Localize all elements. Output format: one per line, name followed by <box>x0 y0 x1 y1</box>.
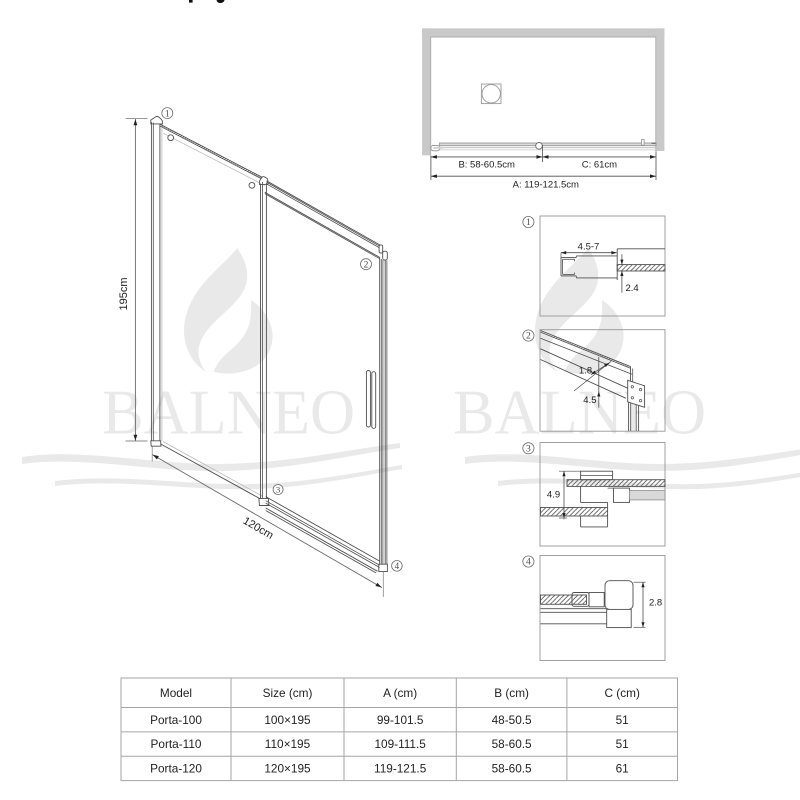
svg-text:Porta-100: Porta-100 <box>150 713 202 727</box>
svg-text:58-60.5: 58-60.5 <box>492 737 532 751</box>
svg-text:2: 2 <box>526 332 531 342</box>
svg-text:1.8: 1.8 <box>579 366 592 377</box>
svg-text:C: 61cm: C: 61cm <box>582 159 617 170</box>
svg-text:B (cm): B (cm) <box>494 686 529 700</box>
svg-text:Model: Model <box>160 686 192 700</box>
svg-text:61: 61 <box>616 762 629 776</box>
svg-text:110×195: 110×195 <box>265 737 311 751</box>
svg-text:3: 3 <box>276 484 281 494</box>
svg-text:2.8: 2.8 <box>649 598 662 609</box>
svg-text:4.5: 4.5 <box>583 395 596 406</box>
svg-text:1: 1 <box>526 218 531 228</box>
svg-text:51: 51 <box>616 713 629 727</box>
svg-text:3: 3 <box>526 445 531 455</box>
svg-text:A: 119-121.5cm: A: 119-121.5cm <box>513 179 579 190</box>
svg-text:109-111.5: 109-111.5 <box>374 737 426 751</box>
svg-text:2: 2 <box>364 260 369 270</box>
svg-text:195cm: 195cm <box>118 277 130 310</box>
svg-text:BALNEO: BALNEO <box>453 377 706 448</box>
svg-text:2.4: 2.4 <box>626 283 639 294</box>
svg-text:Size (cm): Size (cm) <box>263 686 313 700</box>
svg-text:4.5-7: 4.5-7 <box>578 241 600 252</box>
svg-text:119-121.5: 119-121.5 <box>374 762 427 776</box>
svg-text:99-101.5: 99-101.5 <box>377 713 424 727</box>
svg-text:4.9: 4.9 <box>547 489 560 500</box>
svg-text:51: 51 <box>616 737 629 751</box>
svg-text:1: 1 <box>165 109 170 119</box>
svg-text:A (cm): A (cm) <box>383 686 417 700</box>
svg-text:Porta-120: Porta-120 <box>150 762 202 776</box>
svg-text:4: 4 <box>526 558 531 568</box>
svg-text:C (cm): C (cm) <box>605 686 640 700</box>
svg-text:4: 4 <box>395 561 400 571</box>
svg-text:BALNEO: BALNEO <box>102 377 355 448</box>
svg-text:100×195: 100×195 <box>264 713 311 727</box>
svg-text:B: 58-60.5cm: B: 58-60.5cm <box>458 159 515 170</box>
svg-text:58-60.5: 58-60.5 <box>492 762 532 776</box>
svg-text:Porta-110: Porta-110 <box>151 737 202 751</box>
svg-text:120×195: 120×195 <box>264 762 311 776</box>
svg-text:120cm: 120cm <box>241 515 276 542</box>
svg-text:48-50.5: 48-50.5 <box>492 713 532 727</box>
